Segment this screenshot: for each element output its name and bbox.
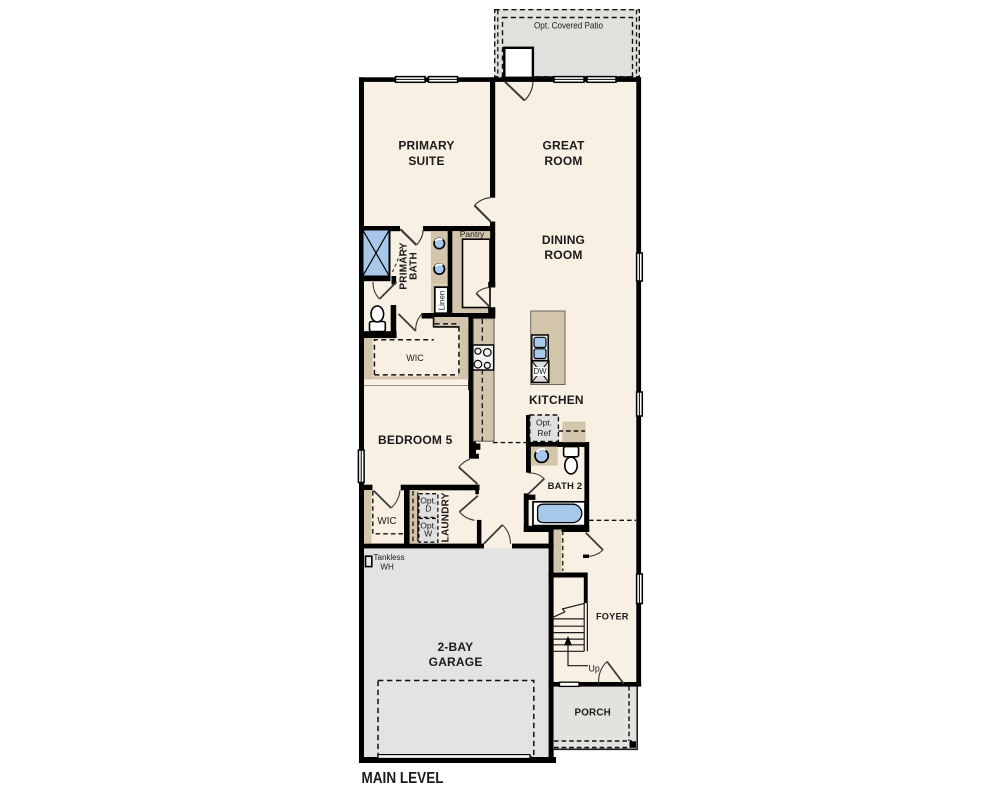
svg-text:ROOM: ROOM xyxy=(544,248,582,262)
svg-text:FOYER: FOYER xyxy=(596,611,629,621)
svg-text:2-BAY: 2-BAY xyxy=(437,640,473,654)
svg-text:WIC: WIC xyxy=(377,516,396,527)
svg-text:MAIN LEVEL: MAIN LEVEL xyxy=(362,770,444,787)
svg-text:Opt.: Opt. xyxy=(536,418,552,428)
svg-text:WH: WH xyxy=(380,562,394,571)
svg-text:WIC: WIC xyxy=(406,353,424,363)
svg-text:Tankless: Tankless xyxy=(374,553,405,562)
svg-text:Up: Up xyxy=(589,663,600,673)
svg-text:GARAGE: GARAGE xyxy=(429,655,483,669)
svg-text:Opt. Covered Patio: Opt. Covered Patio xyxy=(534,21,603,32)
svg-text:Pantry: Pantry xyxy=(460,229,485,239)
svg-text:GREAT: GREAT xyxy=(542,139,585,153)
svg-text:PRIMARY: PRIMARY xyxy=(398,139,454,153)
svg-text:Linen: Linen xyxy=(437,291,446,311)
svg-text:LAUNDRY: LAUNDRY xyxy=(441,492,452,542)
svg-text:PORCH: PORCH xyxy=(575,708,611,719)
svg-text:BEDROOM 5: BEDROOM 5 xyxy=(378,433,453,447)
svg-text:BATH: BATH xyxy=(409,252,420,280)
svg-text:BATH 2: BATH 2 xyxy=(548,481,583,492)
svg-text:DW: DW xyxy=(534,367,548,376)
svg-text:Ref: Ref xyxy=(537,428,551,438)
svg-text:KITCHEN: KITCHEN xyxy=(529,393,584,407)
svg-text:W: W xyxy=(424,529,432,539)
svg-text:DINING: DINING xyxy=(542,233,585,247)
svg-text:SUITE: SUITE xyxy=(408,154,444,168)
svg-text:ROOM: ROOM xyxy=(544,154,582,168)
svg-text:D: D xyxy=(425,504,431,514)
